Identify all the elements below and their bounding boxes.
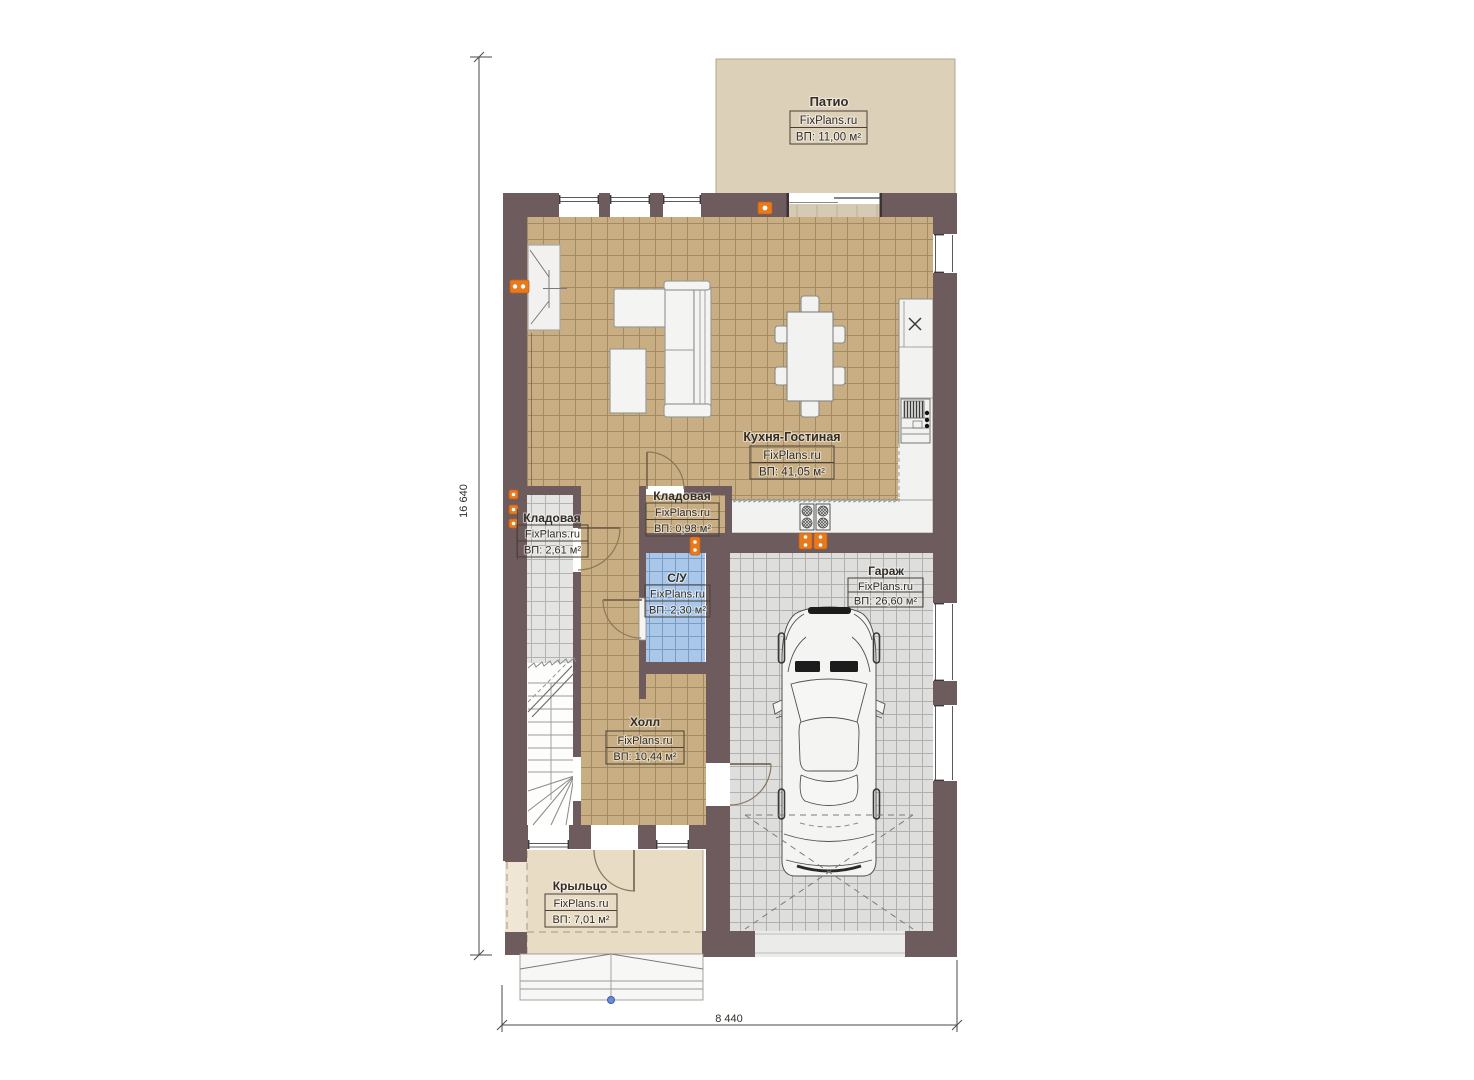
svg-text:ВП: 0,98 м²: ВП: 0,98 м² — [654, 523, 711, 535]
svg-text:ВП: 41,05 м²: ВП: 41,05 м² — [759, 467, 825, 479]
svg-text:8 440: 8 440 — [715, 1013, 743, 1025]
svg-text:FixPlans.ru: FixPlans.ru — [800, 115, 858, 127]
svg-text:FixPlans.ru: FixPlans.ru — [763, 450, 821, 462]
svg-text:Кладовая: Кладовая — [653, 489, 710, 503]
svg-text:ВП: 10,44 м²: ВП: 10,44 м² — [613, 751, 677, 763]
svg-text:Гараж: Гараж — [868, 564, 904, 578]
svg-text:ВП: 2,30 м²: ВП: 2,30 м² — [649, 605, 706, 617]
svg-text:ВП: 11,00 м²: ВП: 11,00 м² — [796, 132, 861, 144]
svg-text:16 640: 16 640 — [458, 484, 470, 518]
svg-text:Крыльцо: Крыльцо — [553, 879, 608, 893]
svg-text:С/У: С/У — [667, 571, 687, 585]
svg-text:FixPlans.ru: FixPlans.ru — [617, 735, 672, 747]
svg-text:FixPlans.ru: FixPlans.ru — [650, 589, 705, 601]
svg-text:ВП: 26,60 м²: ВП: 26,60 м² — [854, 596, 918, 608]
svg-text:FixPlans.ru: FixPlans.ru — [525, 529, 580, 541]
svg-text:FixPlans.ru: FixPlans.ru — [553, 898, 608, 910]
svg-text:Холл: Холл — [630, 715, 660, 729]
svg-text:FixPlans.ru: FixPlans.ru — [858, 581, 913, 593]
svg-text:Патио: Патио — [810, 94, 849, 109]
svg-text:ВП: 2,61 м²: ВП: 2,61 м² — [524, 545, 581, 557]
svg-text:FixPlans.ru: FixPlans.ru — [655, 507, 710, 519]
svg-text:Кладовая: Кладовая — [523, 511, 580, 525]
svg-text:ВП: 7,01 м²: ВП: 7,01 м² — [552, 914, 609, 926]
svg-text:Кухня-Гостиная: Кухня-Гостиная — [743, 430, 840, 444]
